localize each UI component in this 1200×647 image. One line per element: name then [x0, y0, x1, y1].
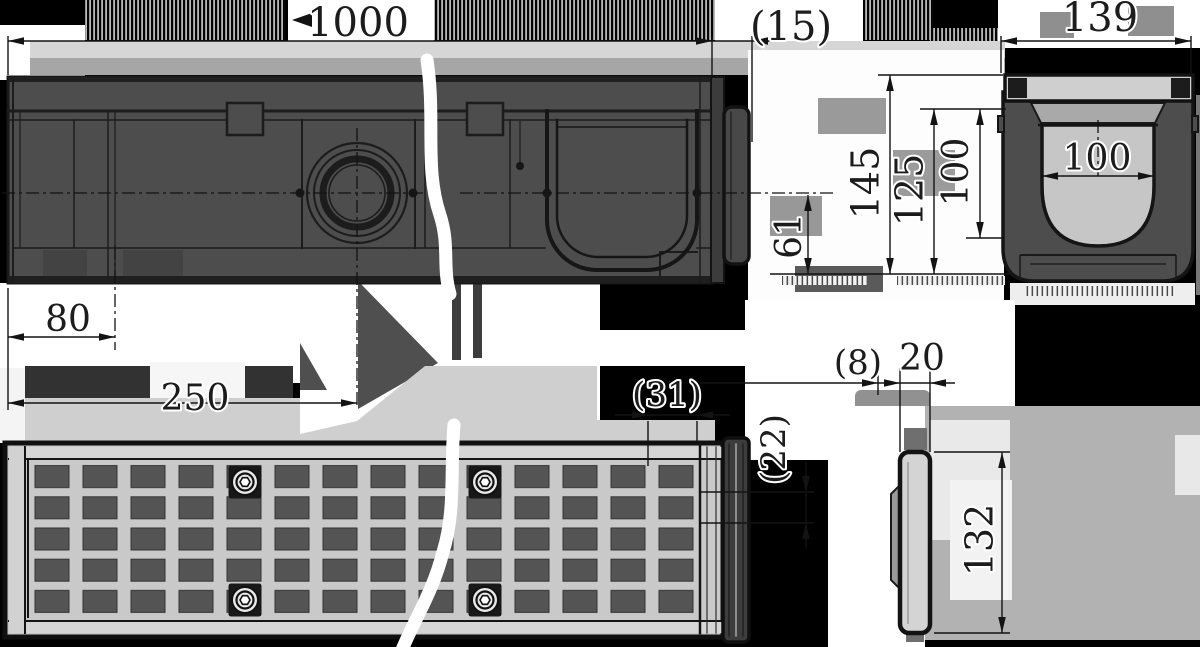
- top-plan-view: [5, 425, 749, 647]
- dim-length-label: 1000: [307, 0, 409, 46]
- grate-bolt: [229, 584, 262, 617]
- grate-bolt: [469, 466, 502, 499]
- grate-bolt: [229, 466, 262, 499]
- dim-cap-lip-label: (8): [834, 343, 882, 383]
- cap-body: [900, 452, 930, 633]
- technical-drawing-page: 1000 (15) 139 100 145 125 100 61 80 250 …: [0, 0, 1200, 647]
- dim-overall-height-label: 145: [844, 147, 888, 220]
- hatch-band: [432, 0, 715, 40]
- dim-outlet-height-label: 61: [769, 213, 810, 259]
- section-grate-bar: [1005, 75, 1193, 101]
- drainage-channel-drawing: 1000 (15) 139 100 145 125 100 61 80 250 …: [0, 0, 1200, 647]
- dim-cap-height-label: 132: [958, 504, 1002, 577]
- dim-edge-detail-label: (22): [754, 414, 794, 484]
- wall-boss: [467, 103, 503, 135]
- side-elevation-view: [8, 60, 749, 294]
- hatch-band: [85, 0, 285, 40]
- dim-bottom-outlet-offset-label: 80: [45, 299, 91, 340]
- side-end-cap: [724, 107, 749, 264]
- grate-mesh: [28, 461, 700, 617]
- dim-inner-width-label: 100: [1063, 138, 1132, 179]
- channel-body: [8, 77, 712, 283]
- dim-cap-width-label: 20: [899, 338, 945, 379]
- dim-end-cap-offset-label: (15): [750, 4, 832, 50]
- wall-boss: [227, 103, 263, 135]
- dim-overall-width-label: 139: [1062, 0, 1138, 41]
- dim-inner-height-label: 100: [936, 138, 977, 207]
- grate-bolt: [469, 584, 502, 617]
- dim-end-detail-label: (31): [632, 375, 702, 415]
- dim-body-height-label: 125: [888, 154, 932, 227]
- hatch-band: [858, 0, 933, 40]
- dim-side-outlet-offset-label: 250: [161, 378, 230, 419]
